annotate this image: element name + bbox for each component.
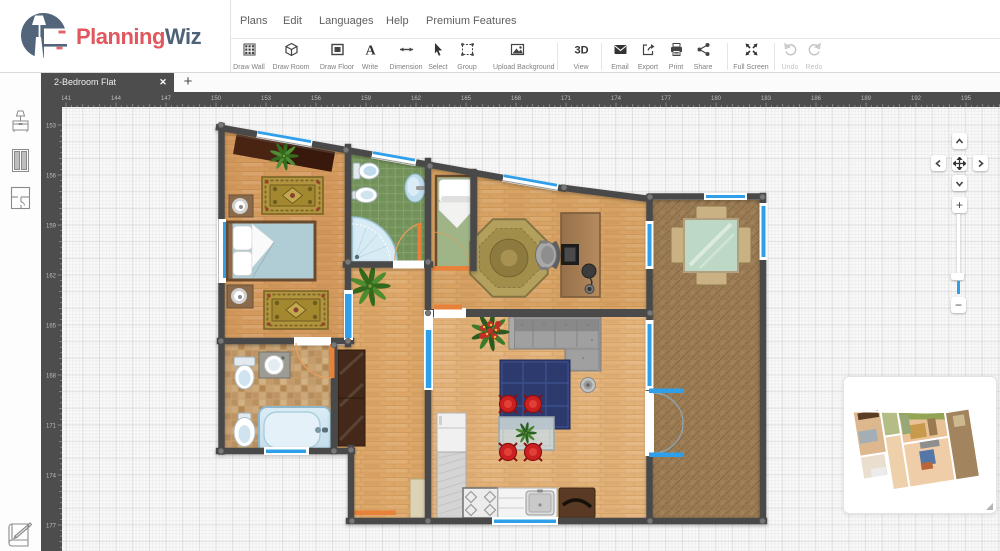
- svg-text:150: 150: [211, 96, 222, 102]
- svg-text:168: 168: [46, 374, 57, 380]
- svg-text:177: 177: [46, 524, 57, 530]
- svg-text:171: 171: [46, 424, 57, 430]
- svg-text:159: 159: [46, 224, 57, 230]
- svg-text:165: 165: [46, 324, 57, 330]
- svg-text:PlanningWiz: PlanningWiz: [76, 24, 202, 49]
- svg-text:183: 183: [761, 96, 772, 102]
- svg-text:177: 177: [661, 96, 672, 102]
- svg-text:156: 156: [46, 174, 57, 180]
- svg-text:189: 189: [861, 96, 872, 102]
- svg-text:144: 144: [111, 96, 122, 102]
- svg-text:3D: 3D: [574, 45, 588, 57]
- svg-text:168: 168: [511, 96, 522, 102]
- svg-text:162: 162: [411, 96, 422, 102]
- svg-text:162: 162: [46, 274, 57, 280]
- svg-text:192: 192: [911, 96, 922, 102]
- svg-text:171: 171: [561, 96, 572, 102]
- svg-text:180: 180: [711, 96, 722, 102]
- svg-text:165: 165: [461, 96, 472, 102]
- svg-text:141: 141: [61, 96, 72, 102]
- svg-text:159: 159: [361, 96, 372, 102]
- svg-text:A: A: [365, 44, 376, 58]
- svg-text:174: 174: [611, 96, 622, 102]
- svg-text:156: 156: [311, 96, 322, 102]
- svg-text:153: 153: [261, 96, 272, 102]
- svg-text:186: 186: [811, 96, 822, 102]
- svg-text:153: 153: [46, 124, 57, 130]
- svg-text:174: 174: [46, 474, 57, 480]
- svg-text:147: 147: [161, 96, 172, 102]
- svg-text:195: 195: [961, 96, 972, 102]
